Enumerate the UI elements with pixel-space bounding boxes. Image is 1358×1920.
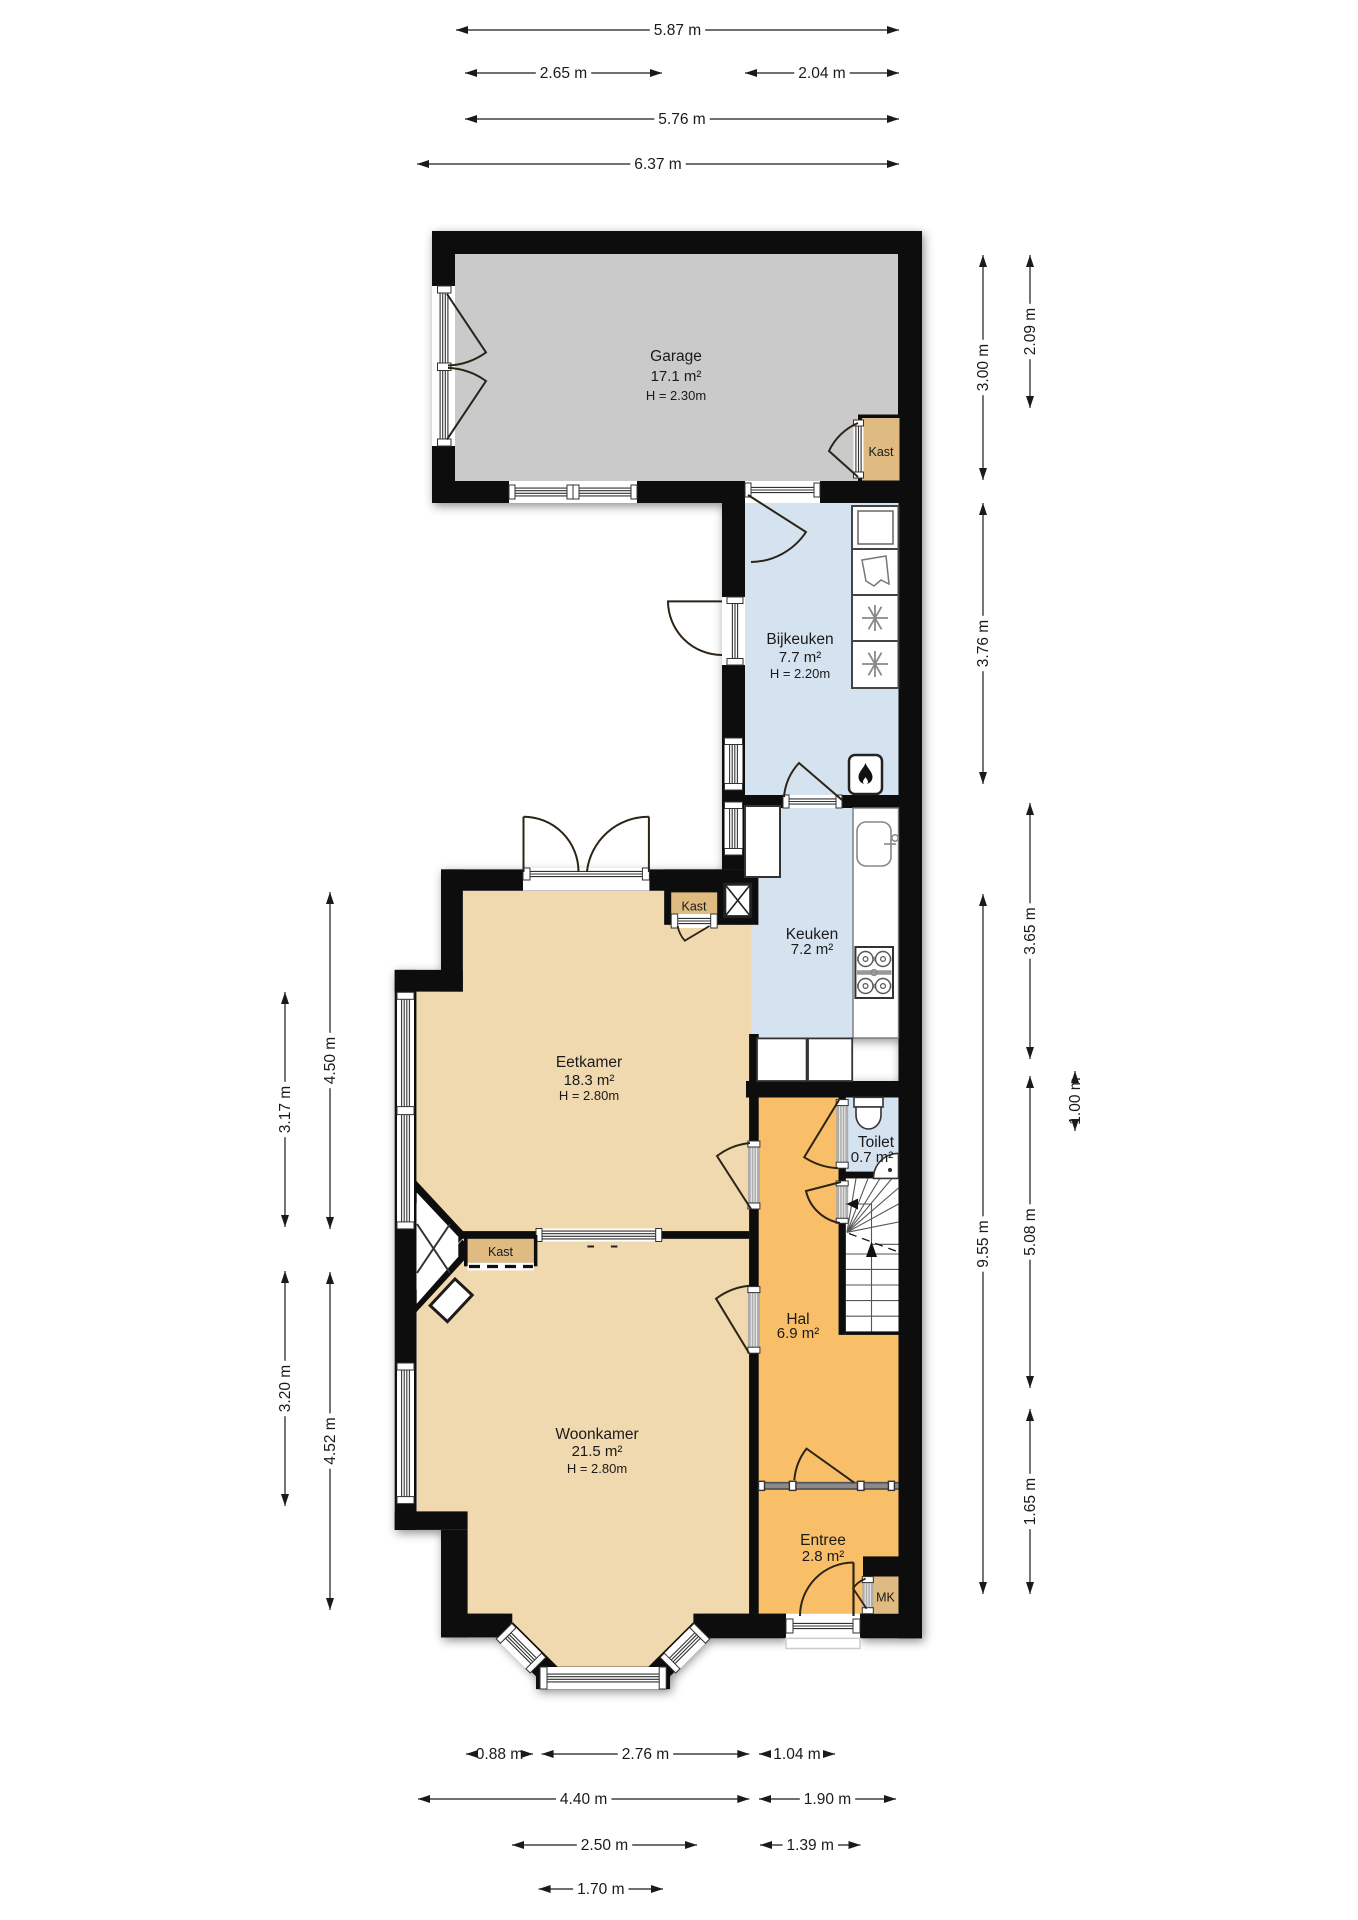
svg-text:Entree: Entree <box>800 1532 846 1549</box>
svg-text:3.20 m: 3.20 m <box>277 1365 294 1412</box>
svg-text:5.76 m: 5.76 m <box>658 111 705 128</box>
svg-text:21.5 m²: 21.5 m² <box>572 1443 623 1460</box>
svg-text:H = 2.80m: H = 2.80m <box>567 1461 627 1476</box>
svg-text:7.2 m²: 7.2 m² <box>791 941 834 958</box>
svg-text:1.00 m: 1.00 m <box>1067 1077 1084 1124</box>
svg-text:Garage: Garage <box>650 348 702 365</box>
svg-text:1.70 m: 1.70 m <box>577 1881 624 1898</box>
svg-text:3.17 m: 3.17 m <box>277 1086 294 1133</box>
svg-text:H = 2.80m: H = 2.80m <box>559 1088 619 1103</box>
svg-text:1.04 m: 1.04 m <box>773 1746 820 1763</box>
svg-text:2.09 m: 2.09 m <box>1022 308 1039 355</box>
svg-text:1.65 m: 1.65 m <box>1022 1478 1039 1525</box>
svg-text:5.87 m: 5.87 m <box>654 22 701 39</box>
svg-text:Eetkamer: Eetkamer <box>556 1054 622 1071</box>
svg-text:0.88 m: 0.88 m <box>476 1746 523 1763</box>
svg-text:3.76 m: 3.76 m <box>975 620 992 667</box>
svg-text:Bijkeuken: Bijkeuken <box>766 631 833 648</box>
svg-text:6.37 m: 6.37 m <box>634 156 681 173</box>
svg-text:2.8 m²: 2.8 m² <box>802 1548 845 1565</box>
svg-text:MK: MK <box>876 1591 895 1605</box>
svg-text:4.50 m: 4.50 m <box>322 1037 339 1084</box>
svg-text:4.52 m: 4.52 m <box>322 1417 339 1464</box>
svg-text:1.39 m: 1.39 m <box>787 1837 834 1854</box>
svg-text:1.90 m: 1.90 m <box>804 1791 851 1808</box>
svg-text:18.3 m²: 18.3 m² <box>564 1072 615 1089</box>
svg-text:3.65 m: 3.65 m <box>1022 907 1039 954</box>
svg-text:4.40 m: 4.40 m <box>560 1791 607 1808</box>
svg-text:0.7 m²: 0.7 m² <box>851 1149 894 1166</box>
svg-text:3.00 m: 3.00 m <box>975 344 992 391</box>
svg-text:6.9 m²: 6.9 m² <box>777 1325 820 1342</box>
svg-text:H = 2.20m: H = 2.20m <box>770 666 830 681</box>
svg-text:2.50 m: 2.50 m <box>581 1837 628 1854</box>
svg-text:H = 2.30m: H = 2.30m <box>646 388 706 403</box>
svg-text:Kast: Kast <box>488 1245 514 1259</box>
svg-text:17.1 m²: 17.1 m² <box>651 368 702 385</box>
svg-text:7.7 m²: 7.7 m² <box>779 649 822 666</box>
svg-text:2.76 m: 2.76 m <box>622 1746 669 1763</box>
svg-text:Kast: Kast <box>681 900 707 914</box>
svg-text:9.55 m: 9.55 m <box>975 1220 992 1267</box>
svg-text:2.04 m: 2.04 m <box>798 65 845 82</box>
svg-text:5.08 m: 5.08 m <box>1022 1208 1039 1255</box>
svg-text:2.65 m: 2.65 m <box>540 65 587 82</box>
svg-text:Woonkamer: Woonkamer <box>555 1426 638 1443</box>
svg-text:Kast: Kast <box>868 445 894 459</box>
